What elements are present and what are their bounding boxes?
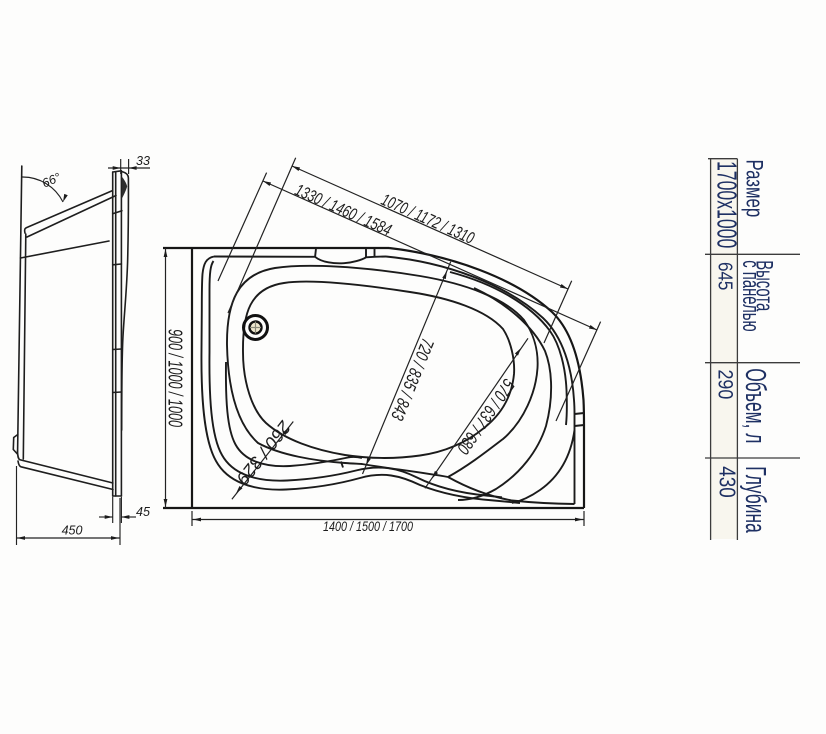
- svg-text:с панелью: с панелью: [737, 260, 763, 331]
- svg-text:1330 / 1460 / 1584: 1330 / 1460 / 1584: [292, 181, 394, 240]
- svg-text:1400 / 1500 / 1700: 1400 / 1500 / 1700: [323, 519, 413, 534]
- svg-text:33: 33: [136, 154, 150, 168]
- svg-text:Объем, л: Объем, л: [739, 368, 772, 443]
- svg-text:Размер: Размер: [741, 160, 768, 218]
- svg-text:645: 645: [714, 262, 737, 290]
- svg-text:Глубина: Глубина: [739, 466, 772, 533]
- svg-text:45: 45: [136, 505, 150, 519]
- svg-text:450: 450: [62, 524, 83, 538]
- svg-text:1700x1000: 1700x1000: [712, 161, 743, 248]
- svg-text:290: 290: [713, 370, 737, 400]
- svg-text:430: 430: [714, 466, 739, 497]
- svg-text:1070 / 1172 / 1310: 1070 / 1172 / 1310: [378, 191, 477, 249]
- svg-text:66°: 66°: [40, 170, 63, 190]
- svg-text:570 / 637 / 680: 570 / 637 / 680: [452, 375, 517, 457]
- svg-text:900 / 1000 / 1000: 900 / 1000 / 1000: [164, 329, 187, 428]
- svg-text:720 / 835 / 843: 720 / 835 / 843: [386, 335, 437, 423]
